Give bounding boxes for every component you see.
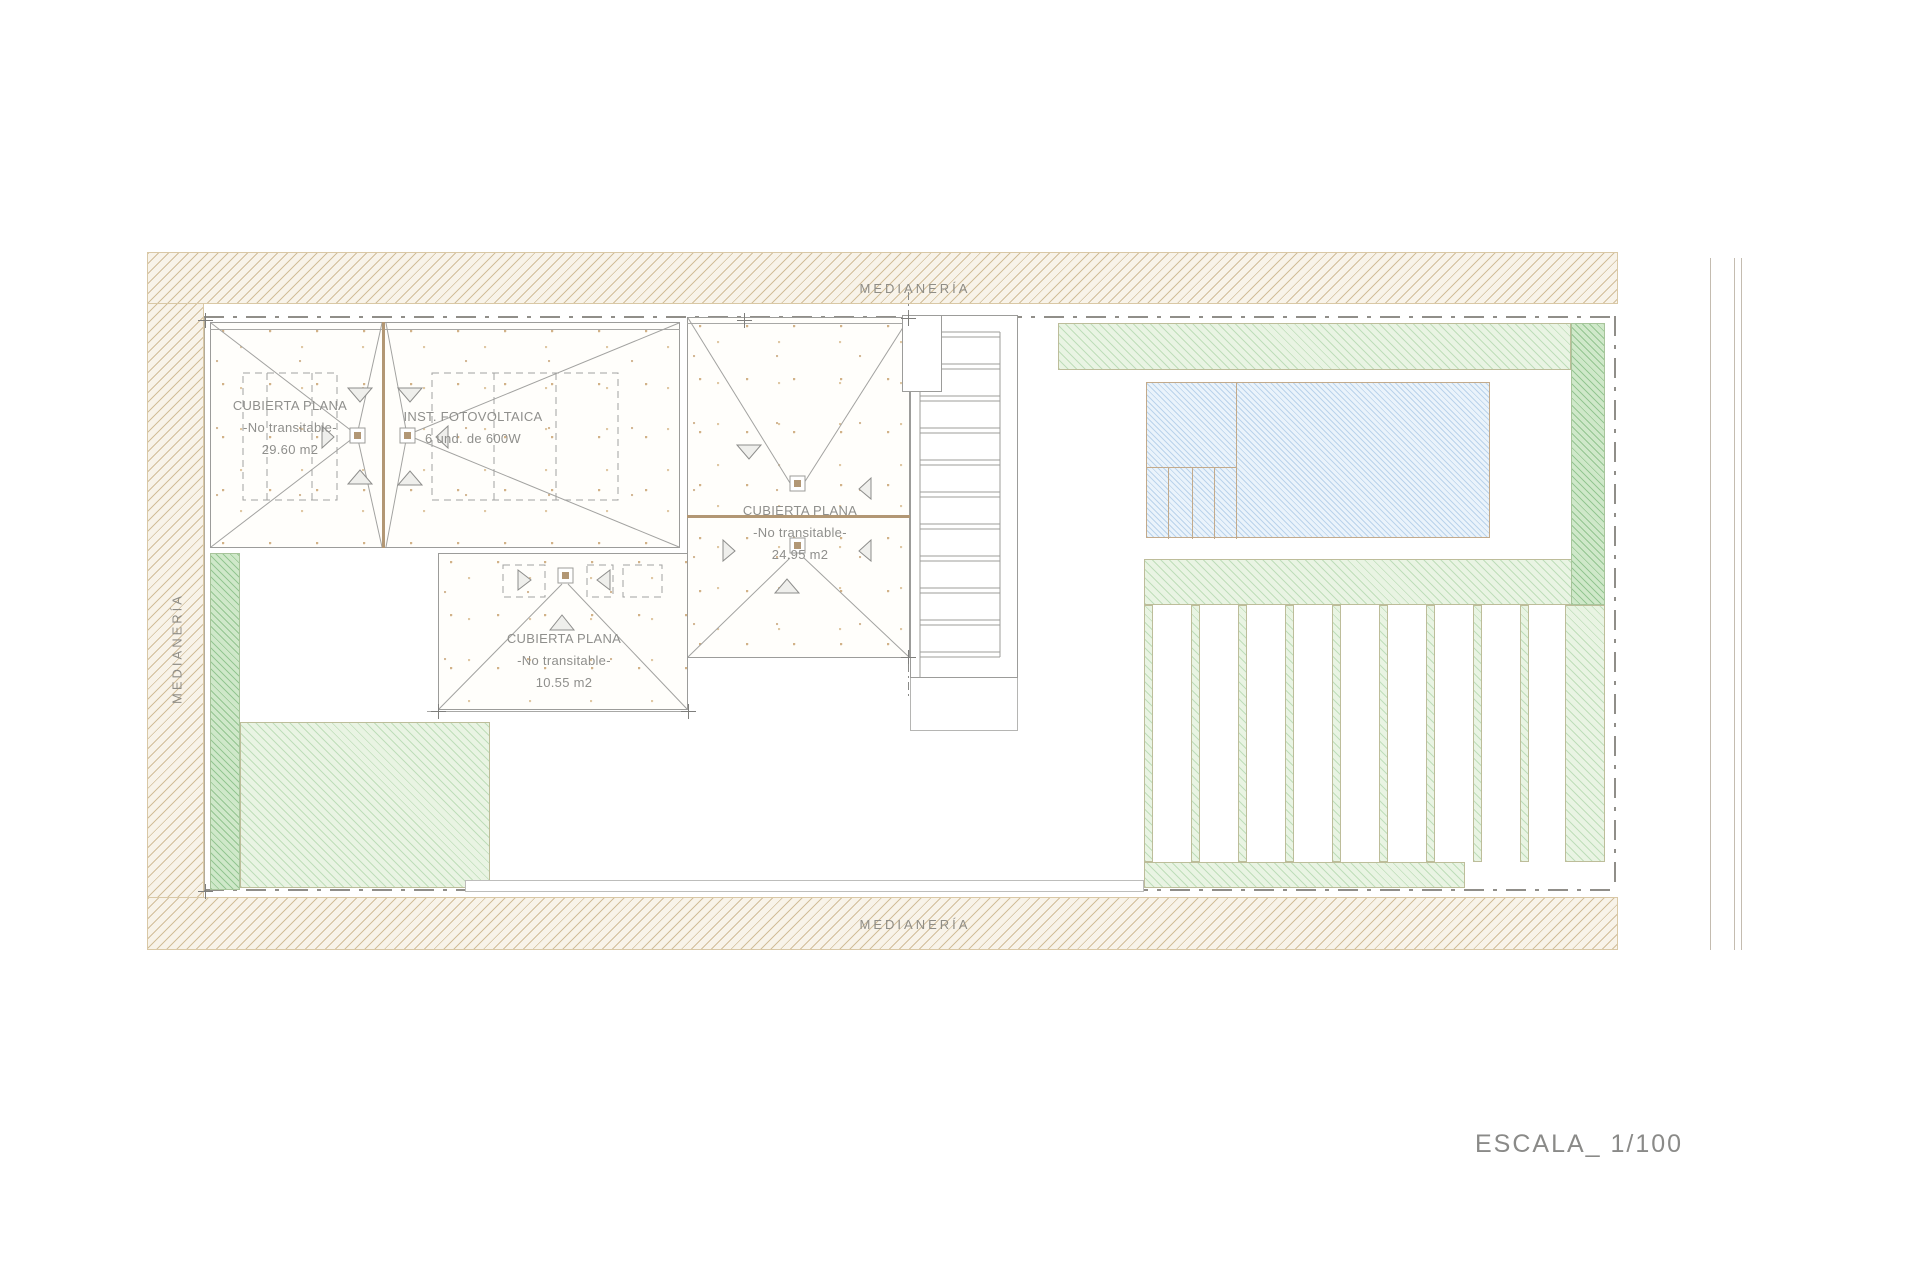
boundary-label-top: MEDIANERÍA <box>825 281 1005 296</box>
pool-step-line <box>1214 467 1215 539</box>
pergola-top-band <box>1144 559 1605 605</box>
roof-small-area: 10.55 m2 <box>489 672 639 694</box>
roof-main-title: CUBIERTA PLANA <box>215 395 365 417</box>
pool-step-line <box>1192 467 1193 539</box>
pergola-bottom-band <box>1144 862 1465 888</box>
garden-area-southwest <box>240 722 490 888</box>
roof-pv-subtitle: 6 und. de 600W <box>393 428 553 450</box>
pergola-slat <box>1191 605 1200 862</box>
roof-small-subtitle: -No transitable- <box>489 650 639 672</box>
street-line-1 <box>1710 258 1711 950</box>
garden-strip-northeast <box>1058 323 1571 370</box>
roof-center-title: CUBIERTA PLANA <box>725 500 875 522</box>
stairs-lower-landing <box>910 678 1018 731</box>
corner-mark <box>737 313 752 328</box>
pergola-slat <box>1332 605 1341 862</box>
pergola-slat <box>1238 605 1247 862</box>
garden-strip-right <box>1571 323 1605 605</box>
pergola-slat <box>1473 605 1482 862</box>
roof-small-title: CUBIERTA PLANA <box>489 628 639 650</box>
scale-label: ESCALA_ 1/100 <box>1475 1130 1683 1159</box>
roof-center-label: CUBIERTA PLANA -No transitable- 24.95 m2 <box>725 500 875 566</box>
roof-center-geometry <box>687 317 910 658</box>
plot-left-edge-line <box>204 318 205 890</box>
street-line-2 <box>1734 258 1735 950</box>
corner-mark <box>431 704 446 719</box>
pergola-slat <box>1144 605 1153 862</box>
roof-main-area: 29.60 m2 <box>215 439 365 461</box>
corner-mark <box>681 704 696 719</box>
roof-center-subtitle: -No transitable- <box>725 522 875 544</box>
roof-small-label: CUBIERTA PLANA -No transitable- 10.55 m2 <box>489 628 639 694</box>
roof-pv-title: INST. FOTOVOLTAICA <box>393 406 553 428</box>
garden-strip-left <box>210 553 240 890</box>
terrace-bottom-line <box>427 711 688 712</box>
axis-stub-top <box>908 292 909 314</box>
swimming-pool <box>1146 382 1490 538</box>
pergola-slat <box>1379 605 1388 862</box>
floor-plan-sheet: MEDIANERÍA MEDIANERÍA MEDIANERÍA <box>0 0 1920 1280</box>
terrace-step-band <box>465 880 1144 892</box>
corner-mark <box>198 313 213 328</box>
street-line-3 <box>1741 258 1742 950</box>
pool-step-line <box>1168 467 1169 539</box>
boundary-label-left: MEDIANERÍA <box>170 584 185 714</box>
roof-main-ridge <box>382 322 385 548</box>
pergola-slat <box>1520 605 1529 862</box>
chimney-shaft <box>902 315 942 392</box>
roof-pv-label: INST. FOTOVOLTAICA 6 und. de 600W <box>393 406 553 450</box>
roof-main-subtitle: -No transitable- <box>215 417 365 439</box>
pergola-right-column <box>1565 605 1605 862</box>
roof-center-area: 24.95 m2 <box>725 544 875 566</box>
boundary-label-bottom: MEDIANERÍA <box>825 917 1005 932</box>
corner-mark <box>198 884 213 899</box>
pool-divider-vertical <box>1236 383 1237 539</box>
boundary-strip-top <box>147 252 1618 304</box>
pergola-slat <box>1285 605 1294 862</box>
axis-stub-bottom <box>908 664 909 700</box>
corner-mark <box>901 650 916 665</box>
boundary-dashline-right <box>1614 316 1616 891</box>
pergola-slat <box>1426 605 1435 862</box>
roof-main-label: CUBIERTA PLANA -No transitable- 29.60 m2 <box>215 395 365 461</box>
